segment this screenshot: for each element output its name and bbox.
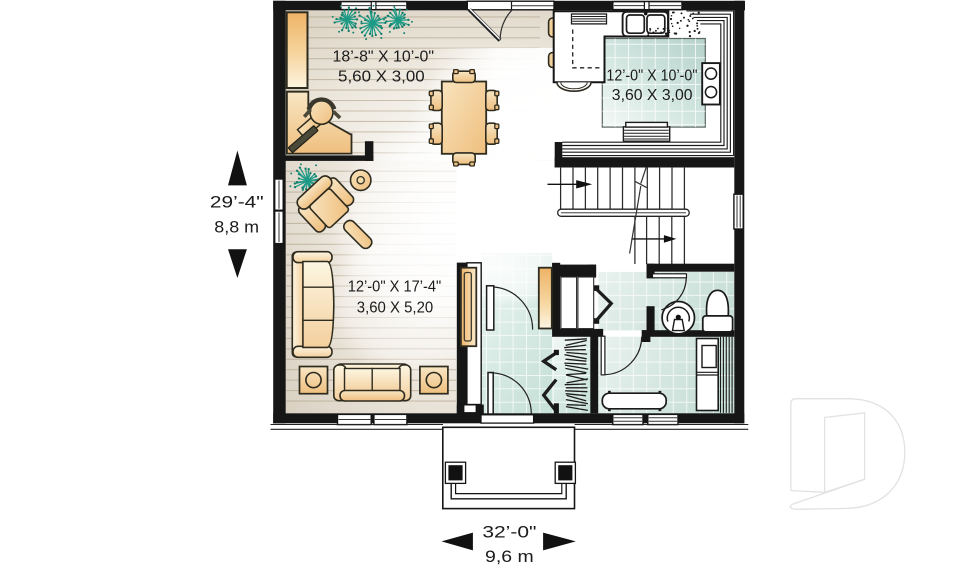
svg-text:32’-0": 32’-0" <box>482 523 536 542</box>
svg-text:12’-0" X 17’-4": 12’-0" X 17’-4" <box>348 279 442 296</box>
svg-text:8,8 m: 8,8 m <box>214 218 259 237</box>
svg-text:12’-0" X 10’-0": 12’-0" X 10’-0" <box>606 67 697 84</box>
svg-text:3,60 X 5,20: 3,60 X 5,20 <box>357 300 434 317</box>
svg-text:9,6 m: 9,6 m <box>485 547 534 566</box>
svg-text:29’-4": 29’-4" <box>210 192 264 211</box>
svg-text:18’-8" X 10’-0": 18’-8" X 10’-0" <box>333 48 435 65</box>
svg-text:3,60 X 3,00: 3,60 X 3,00 <box>612 87 693 104</box>
svg-text:5,60 X 3,00: 5,60 X 3,00 <box>338 69 425 86</box>
